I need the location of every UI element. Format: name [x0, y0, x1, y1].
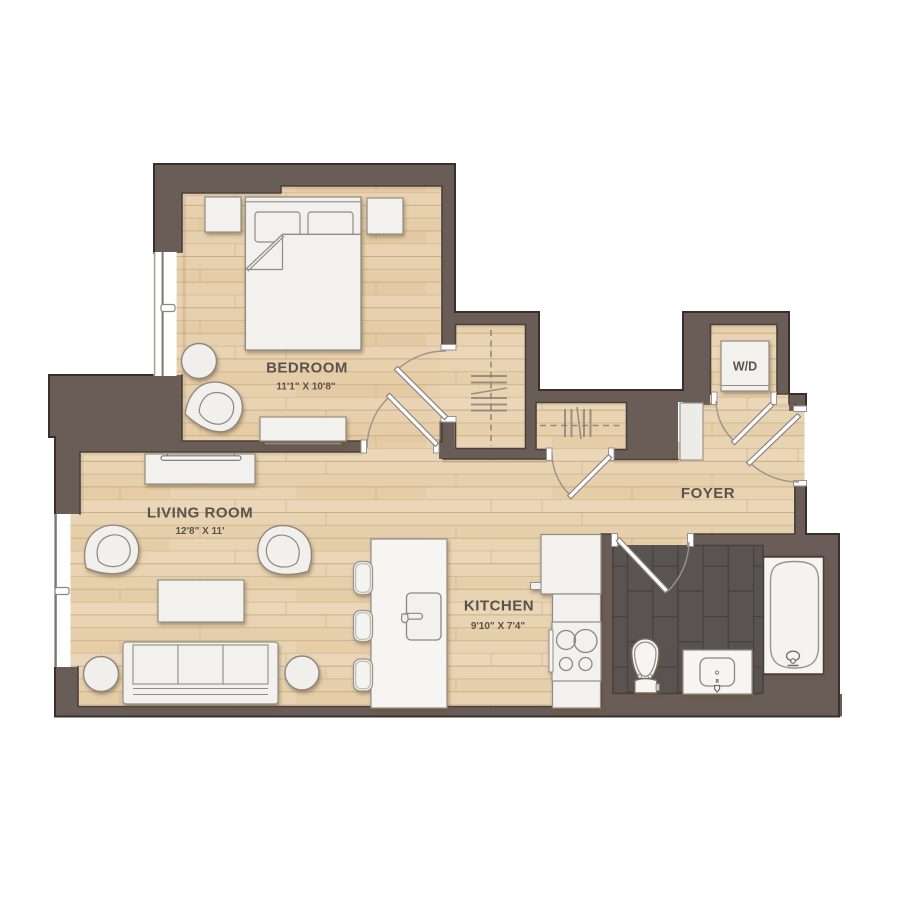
- svg-text:W/D: W/D: [733, 360, 757, 374]
- svg-text:12'8" X 11': 12'8" X 11': [176, 526, 225, 537]
- svg-text:FOYER: FOYER: [681, 485, 735, 502]
- svg-text:KITCHEN: KITCHEN: [464, 598, 534, 615]
- svg-text:11'1" X 10'8": 11'1" X 10'8": [276, 382, 336, 393]
- svg-text:BEDROOM: BEDROOM: [266, 360, 348, 377]
- svg-text:LIVING ROOM: LIVING ROOM: [147, 505, 253, 522]
- svg-text:9'10" X 7'4": 9'10" X 7'4": [471, 621, 526, 632]
